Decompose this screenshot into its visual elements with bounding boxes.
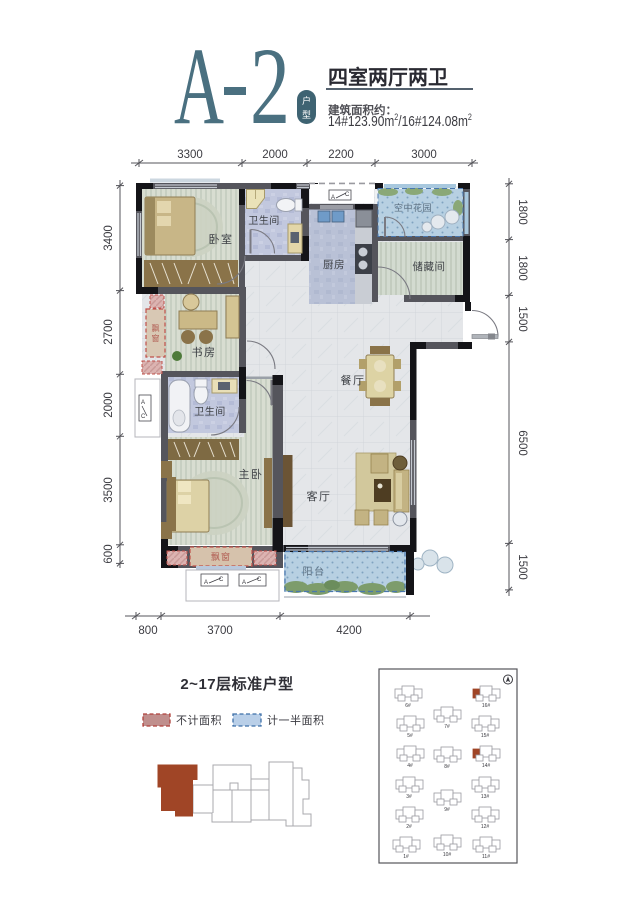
svg-text:餐厅: 餐厅: [341, 373, 366, 387]
svg-text:A: A: [141, 400, 145, 406]
svg-text:3000: 3000: [411, 149, 437, 161]
svg-text:飘: 飘: [152, 324, 160, 333]
svg-text:11#: 11#: [482, 854, 490, 860]
svg-text:9#: 9#: [444, 807, 450, 813]
svg-text:C: C: [257, 577, 262, 583]
svg-text:A: A: [204, 580, 208, 586]
svg-text:3500: 3500: [103, 477, 115, 503]
svg-text:空中花园: 空中花园: [394, 202, 432, 213]
svg-text:A: A: [174, 25, 224, 147]
svg-text:卫生间: 卫生间: [248, 214, 280, 227]
svg-text:卫生间: 卫生间: [194, 405, 226, 418]
svg-text:12#: 12#: [481, 824, 490, 830]
svg-text:卧室: 卧室: [209, 232, 234, 246]
svg-text:8#: 8#: [444, 764, 450, 770]
svg-text:3400: 3400: [103, 225, 115, 251]
svg-text:1500: 1500: [516, 306, 528, 332]
svg-text:C: C: [141, 414, 146, 420]
svg-text:飘窗: 飘窗: [211, 551, 231, 562]
svg-text:3700: 3700: [207, 625, 233, 637]
svg-text:1#: 1#: [403, 854, 409, 860]
svg-text:15#: 15#: [481, 733, 490, 739]
svg-text:3#: 3#: [406, 794, 412, 800]
svg-text:7#: 7#: [444, 724, 450, 730]
svg-text:窗: 窗: [152, 333, 160, 343]
svg-text:800: 800: [138, 625, 157, 637]
svg-text:4#: 4#: [407, 763, 413, 769]
svg-text:5#: 5#: [407, 733, 413, 739]
svg-text:A: A: [242, 580, 246, 586]
svg-text:3300: 3300: [177, 149, 203, 161]
svg-text:阳台: 阳台: [303, 565, 326, 578]
svg-text:书房: 书房: [192, 346, 217, 359]
svg-text:客厅: 客厅: [307, 489, 332, 503]
svg-text:2000: 2000: [103, 392, 115, 418]
svg-text:2200: 2200: [328, 149, 354, 161]
svg-text:600: 600: [103, 544, 115, 563]
svg-text:型: 型: [302, 110, 311, 120]
svg-text:6500: 6500: [516, 430, 528, 456]
svg-text:C: C: [219, 577, 224, 583]
svg-text:16#: 16#: [482, 703, 491, 709]
svg-text:10#: 10#: [443, 852, 452, 858]
svg-text:厨房: 厨房: [323, 258, 345, 271]
svg-text:1500: 1500: [516, 554, 528, 580]
svg-text:6#: 6#: [405, 703, 411, 709]
svg-text:2: 2: [250, 25, 290, 147]
svg-text:计一半面积: 计一半面积: [267, 713, 325, 727]
svg-text:2700: 2700: [103, 319, 115, 345]
svg-text:13#: 13#: [481, 794, 490, 800]
svg-text:2#: 2#: [406, 824, 412, 830]
svg-text:4200: 4200: [336, 625, 362, 637]
svg-text:14#: 14#: [482, 763, 491, 769]
svg-text:不计面积: 不计面积: [176, 714, 222, 727]
svg-text:1800: 1800: [516, 255, 528, 281]
svg-text:户: 户: [302, 95, 311, 106]
svg-text:主卧: 主卧: [239, 468, 264, 481]
svg-text:A: A: [331, 195, 335, 201]
svg-text:储藏间: 储藏间: [413, 260, 446, 273]
svg-text:1800: 1800: [516, 199, 528, 225]
svg-text:2000: 2000: [262, 149, 288, 161]
